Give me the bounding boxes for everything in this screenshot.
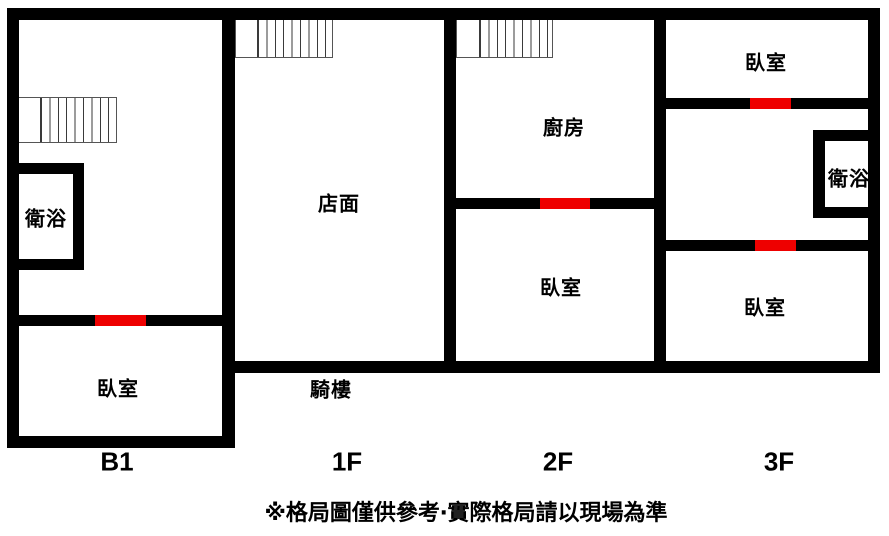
3f-bathroom-wall-left — [813, 130, 825, 218]
2f-stairs-icon — [456, 20, 553, 58]
divider-b1-1f — [222, 8, 235, 448]
room-label-3f-bathroom: 衛浴 — [828, 163, 870, 192]
divider-1f-2f — [444, 8, 456, 373]
floor-label-3f: 3F — [764, 447, 794, 478]
room-label-2f-kitchen: 廚房 — [543, 112, 585, 141]
door-marker-b1-bedroom — [95, 315, 146, 326]
door-marker-3f-mid — [755, 240, 796, 251]
b1-bathroom-wall-right — [73, 163, 84, 270]
room-label-b1-bathroom: 衛浴 — [25, 203, 67, 232]
floor-label-2f: 2F — [543, 447, 573, 478]
disclaimer-text: ※格局圖僅供參考‧實際格局請以現場為準 — [264, 495, 667, 527]
outer-wall-left — [7, 8, 19, 448]
floor-label-1f: 1F — [332, 447, 362, 478]
room-label-3f-bedroom-bottom: 臥室 — [744, 292, 786, 321]
3f-bathroom-wall-top — [813, 130, 880, 141]
door-marker-2f-kitchen — [540, 198, 590, 209]
b1-bathroom-wall-bottom — [7, 259, 84, 270]
1f-stairs-icon — [235, 20, 333, 58]
floor-label-b1: B1 — [100, 447, 133, 478]
3f-bathroom-wall-bottom — [813, 207, 880, 218]
floor-plan: 衛浴 臥室 B1 店面 騎樓 1F 廚房 臥室 2F 臥室 衛浴 臥室 3F ※… — [0, 0, 889, 536]
stairs-hatch — [479, 20, 552, 57]
b1-stairs-icon — [18, 97, 117, 143]
stairs-hatch — [40, 98, 116, 142]
stairs-hatch — [257, 20, 332, 57]
room-label-1f-storefront: 店面 — [318, 188, 360, 217]
room-label-1f-arcade: 騎樓 — [310, 374, 352, 403]
door-marker-3f-top-bedroom — [750, 98, 791, 109]
main-bottom-wall — [222, 361, 880, 373]
divider-2f-3f — [654, 8, 666, 373]
room-label-2f-bedroom: 臥室 — [540, 272, 582, 301]
room-label-b1-bedroom: 臥室 — [97, 373, 139, 402]
room-label-3f-bedroom-top: 臥室 — [745, 47, 787, 76]
